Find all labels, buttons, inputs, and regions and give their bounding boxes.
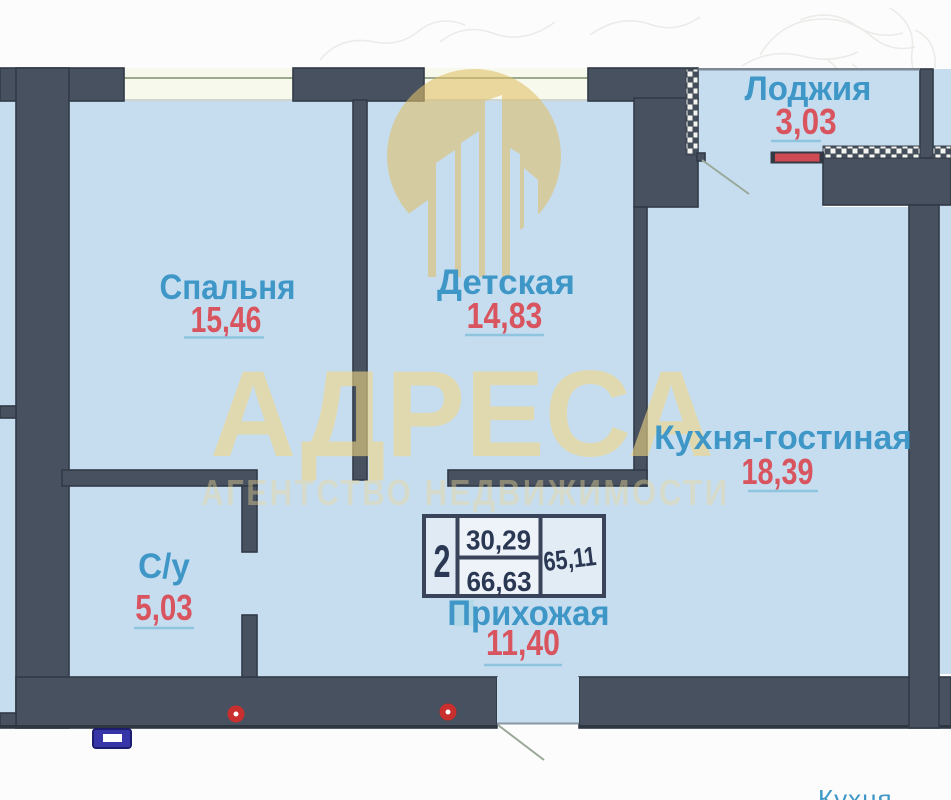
svg-text:14,83: 14,83: [467, 297, 543, 337]
svg-text:АДРЕСА: АДРЕСА: [210, 344, 714, 482]
svg-text:АГЕНТСТВО НЕДВИЖИМОСТИ: АГЕНТСТВО НЕДВИЖИМОСТИ: [201, 474, 730, 514]
svg-text:15,46: 15,46: [191, 300, 262, 340]
svg-text:Кухня: Кухня: [818, 784, 893, 800]
svg-text:С/у: С/у: [138, 547, 190, 586]
svg-text:3,03: 3,03: [775, 102, 836, 142]
svg-text:11,40: 11,40: [486, 624, 560, 664]
svg-text:2: 2: [433, 537, 450, 587]
svg-text:5,03: 5,03: [135, 587, 192, 627]
svg-text:66,63: 66,63: [466, 566, 531, 597]
svg-text:65,11: 65,11: [542, 542, 598, 578]
svg-text:30,29: 30,29: [466, 525, 531, 556]
svg-text:18,39: 18,39: [741, 451, 813, 492]
